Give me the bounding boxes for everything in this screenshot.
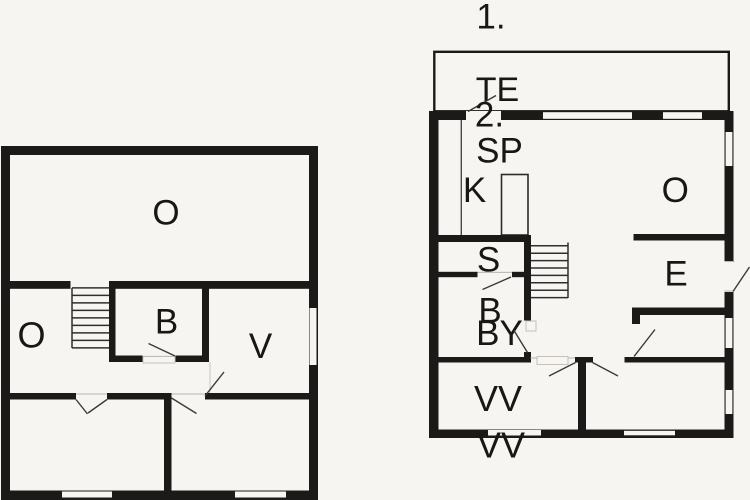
svg-text:S: S [477,241,500,280]
svg-text:O: O [662,171,689,210]
svg-text:VV: VV [477,425,525,466]
svg-text:O: O [152,193,179,232]
svg-text:1.: 1. [476,0,505,37]
svg-text:2.: 2. [475,95,504,134]
svg-text:VV: VV [474,378,522,419]
svg-text:O: O [17,315,45,356]
svg-text:B: B [155,302,178,341]
svg-text:E: E [664,254,687,293]
svg-text:SP: SP [476,132,523,171]
svg-text:V: V [249,327,273,366]
svg-text:K: K [463,171,486,210]
